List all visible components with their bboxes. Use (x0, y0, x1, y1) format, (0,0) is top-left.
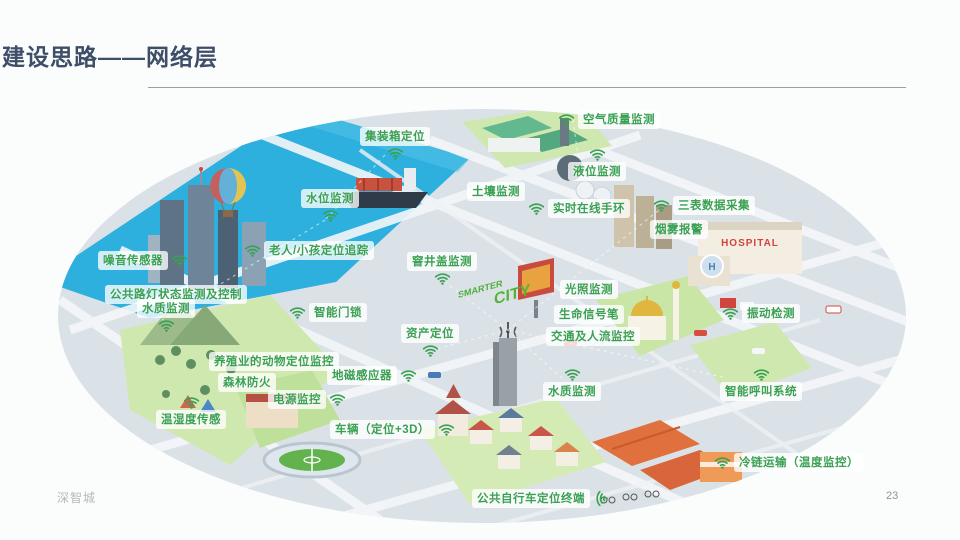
watermark: 深智城 (57, 489, 96, 506)
hospital-sign: HOSPITAL (721, 238, 779, 249)
stadium (264, 443, 360, 477)
page-number: 23 (886, 490, 898, 502)
city-map-illustration: HOSPITAL H SMARTER CITY (0, 0, 960, 540)
title-divider (148, 87, 906, 88)
school (246, 394, 298, 428)
page-title: 建设思路——网络层 (2, 38, 218, 72)
helipad-letter: H (708, 262, 715, 273)
